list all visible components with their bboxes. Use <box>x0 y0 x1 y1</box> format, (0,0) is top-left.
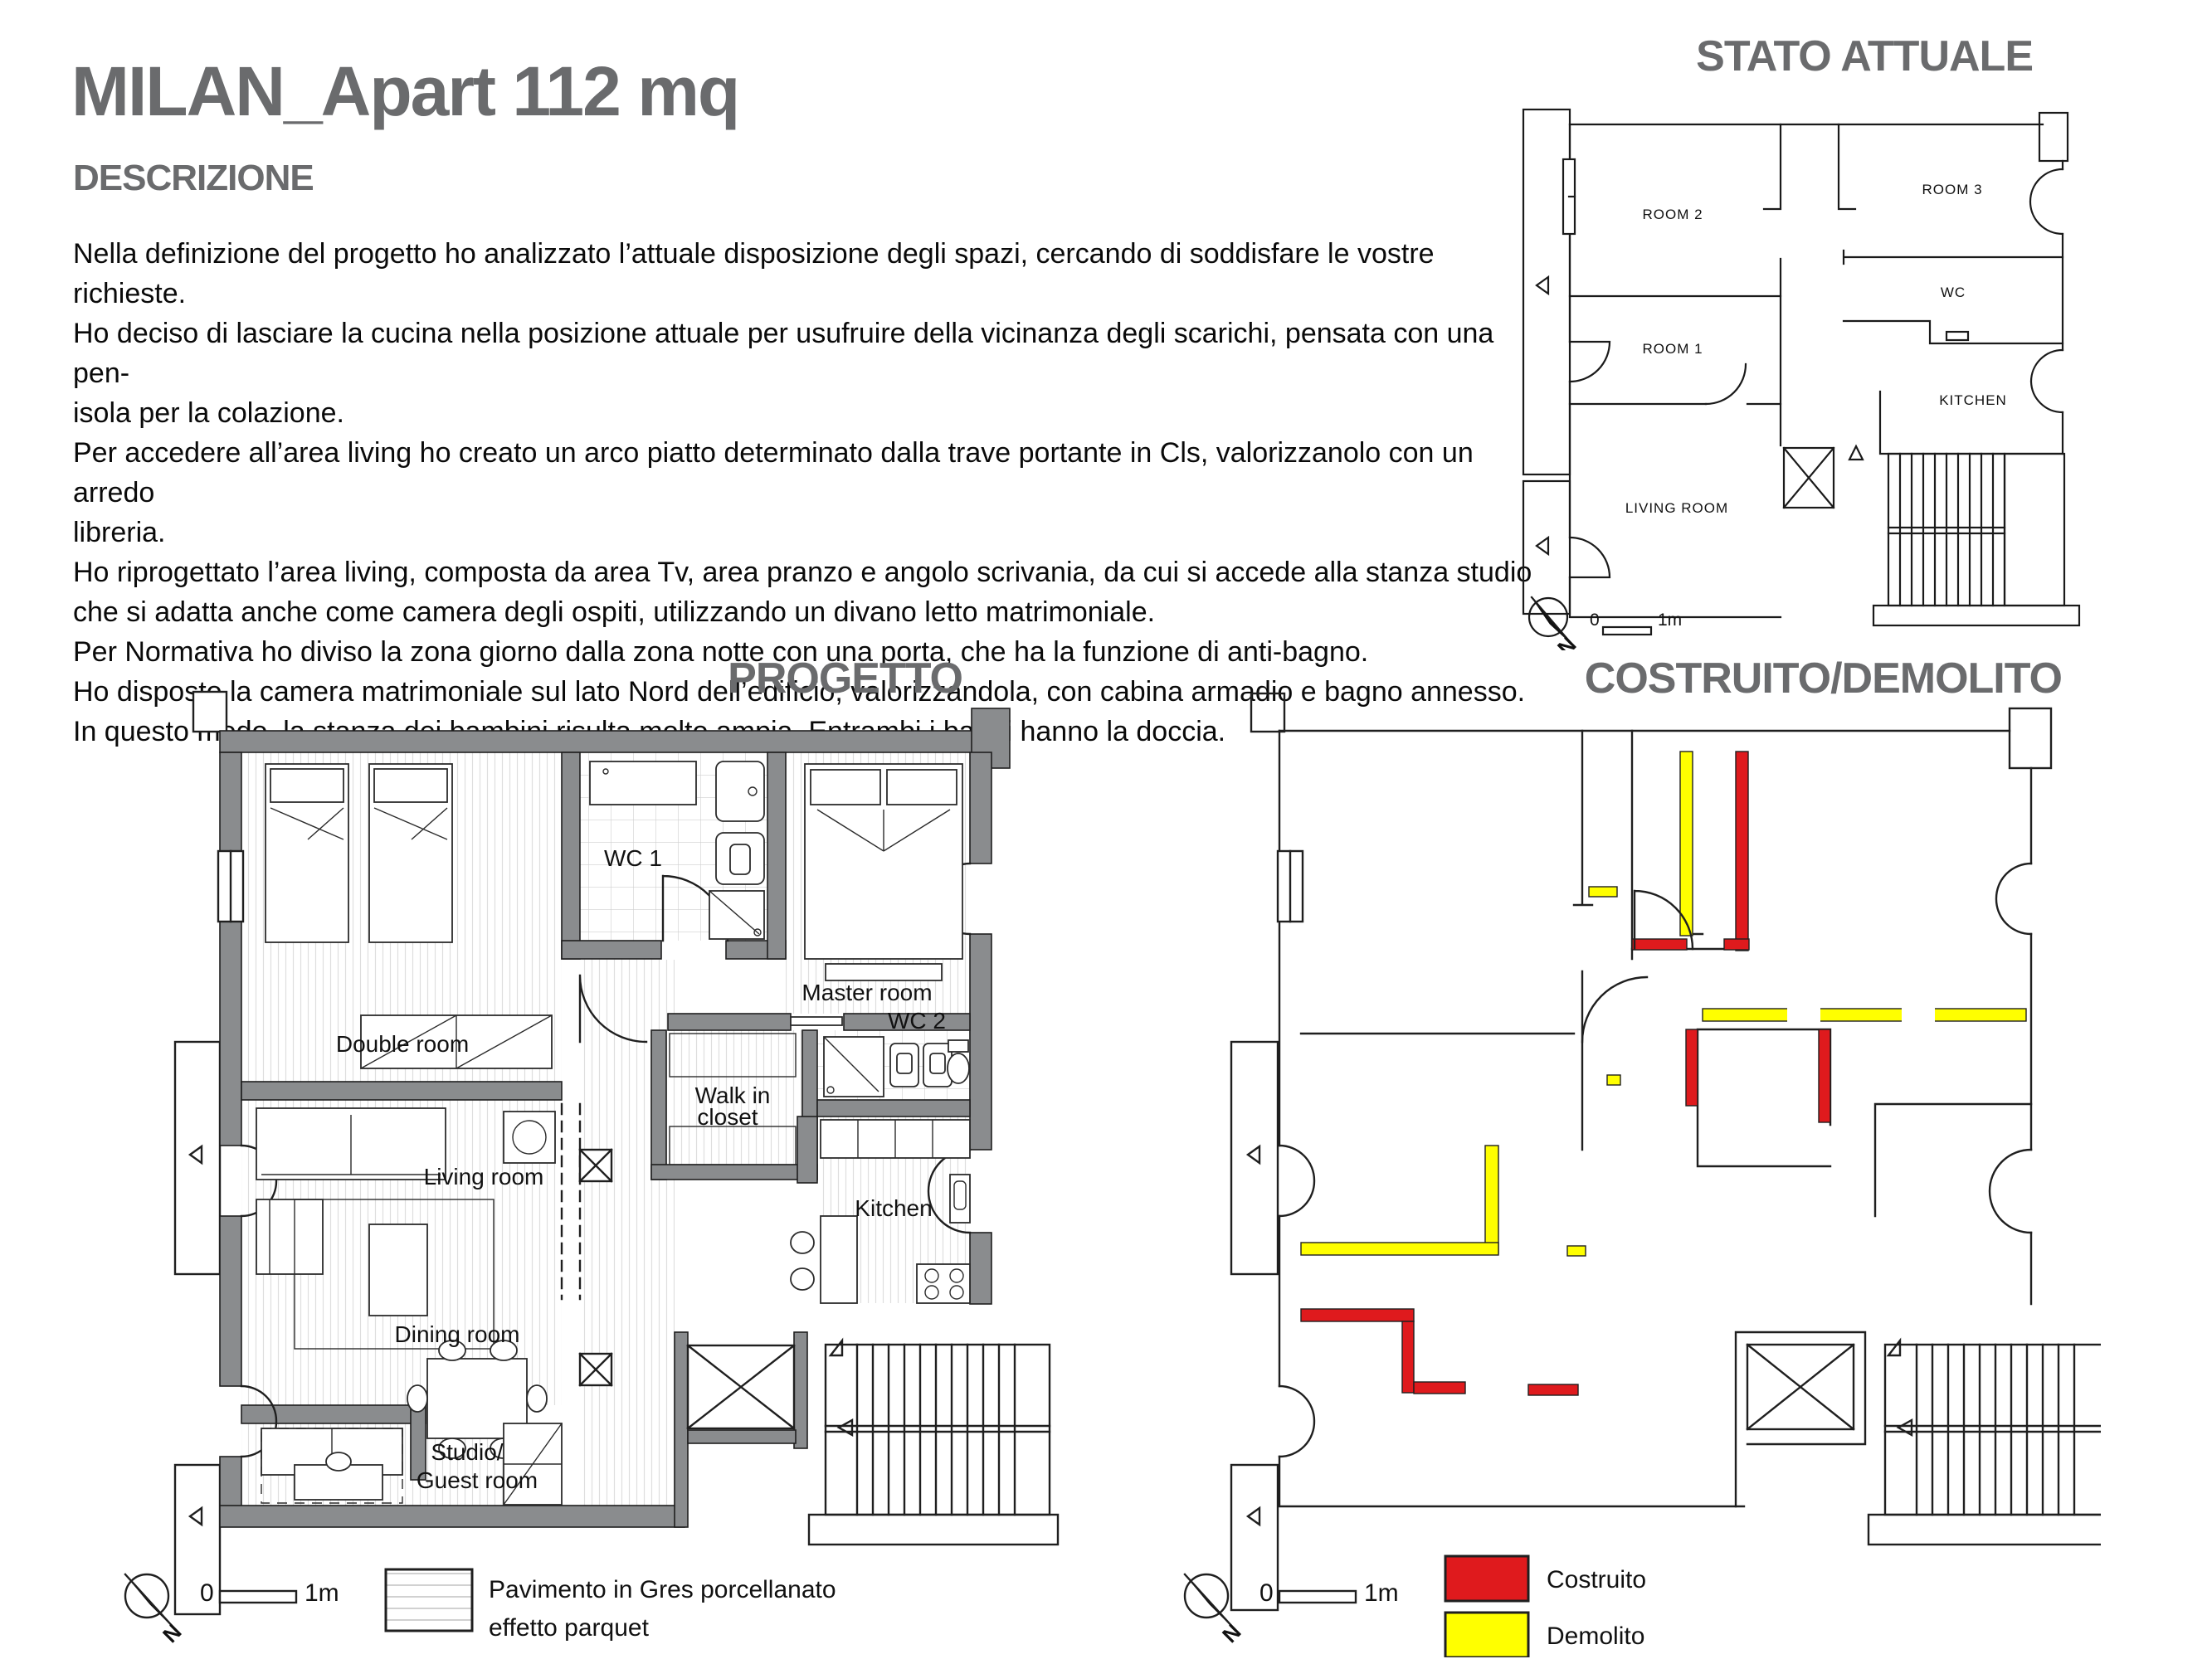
room-label: KITCHEN <box>1939 392 2007 408</box>
room-label: Guest room <box>417 1467 538 1493</box>
room-label: ROOM 3 <box>1922 182 1982 197</box>
room-label: Dining room <box>395 1321 520 1347</box>
room-label: Double room <box>336 1031 469 1057</box>
demolito-label: Demolito <box>1547 1623 1644 1650</box>
room-label: Kitchen <box>855 1195 932 1221</box>
elevator-icon <box>1784 448 1834 508</box>
progetto-plan: Double room WC 1 Master room Walk in clo… <box>95 685 1074 1657</box>
exterior-corridor <box>1523 481 1570 614</box>
room-label: ROOM 1 <box>1642 341 1703 357</box>
entry-arrow-icon <box>1849 446 1863 460</box>
costruito-label: Costruito <box>1547 1566 1646 1593</box>
elevator-icon <box>688 1345 794 1428</box>
door-arrow-icon <box>1248 1508 1259 1525</box>
room-label: WC 1 <box>604 845 662 871</box>
door-arrow-icon <box>1537 277 1548 294</box>
compass-icon: N <box>1529 597 1581 650</box>
room-label: closet <box>697 1104 758 1130</box>
exterior-pilaster <box>193 692 227 732</box>
costruito-swatch <box>1445 1556 1528 1601</box>
costruito-legend-item: Costruito <box>1445 1556 1646 1601</box>
scale-unit-label: 1m <box>305 1579 339 1607</box>
built-walls <box>1301 752 1830 1395</box>
bed <box>805 764 962 980</box>
stove-icon <box>917 1264 970 1303</box>
scale-bar: 0 1m <box>1590 611 1682 635</box>
stairs <box>1873 454 2079 625</box>
page-title: MILAN_Apart 112 mq <box>71 51 738 132</box>
stato-attuale-title: STATO ATTUALE <box>1618 32 2033 81</box>
room-label: Living room <box>424 1164 544 1190</box>
exterior-pilaster <box>1251 693 1284 732</box>
elevator-icon <box>1736 1332 1865 1506</box>
coffee-table <box>369 1224 427 1316</box>
floor-legend: Pavimento in Gres porcellanato effetto p… <box>386 1569 836 1642</box>
costruito-demolito-plan: N 0 1m Costruito Demolito <box>1155 685 2101 1657</box>
floor-legend-swatch <box>386 1569 472 1631</box>
compass-n-label: N <box>1217 1619 1245 1647</box>
exterior-corridor <box>1231 1042 1278 1274</box>
stairs <box>1869 1345 2101 1545</box>
scale-bar: 0 1m <box>1259 1579 1399 1607</box>
demolished-walls <box>1301 752 2026 1256</box>
stato-attuale-plan: ROOM 2 ROOM 1 LIVING ROOM ROOM 3 WC KITC… <box>1515 76 2106 650</box>
stairs <box>809 1345 1058 1545</box>
room-label: WC 2 <box>888 1008 946 1034</box>
floor-legend-label: effetto parquet <box>489 1614 650 1642</box>
entry-arrow-icon <box>831 1340 842 1355</box>
compass-n-label: N <box>158 1619 186 1647</box>
door-arrow-icon <box>1248 1146 1259 1163</box>
scale-unit-label: 1m <box>1364 1579 1399 1607</box>
room-label: Master room <box>801 980 932 1005</box>
entry-arrow-icon <box>1888 1340 1900 1355</box>
flat-arch <box>562 1104 580 1299</box>
scale-zero-label: 0 <box>1590 611 1600 630</box>
floor-legend-label: Pavimento in Gres porcellanato <box>489 1576 836 1603</box>
room-label: Studio/ <box>431 1439 503 1465</box>
room-label: LIVING ROOM <box>1625 500 1728 516</box>
scale-unit-label: 1m <box>1658 611 1682 630</box>
exterior-corridor <box>175 1042 220 1274</box>
room-label: ROOM 2 <box>1642 207 1703 222</box>
door-arrow-icon <box>1537 538 1548 554</box>
demolito-swatch <box>1445 1613 1528 1657</box>
descrizione-heading: DESCRIZIONE <box>73 158 314 199</box>
door-arcs <box>1279 864 2031 1457</box>
scale-zero-label: 0 <box>200 1579 214 1607</box>
presentation-sheet: MILAN_Apart 112 mq DESCRIZIONE Nella def… <box>0 0 2212 1659</box>
demolito-legend-item: Demolito <box>1445 1613 1644 1657</box>
peninsula <box>821 1216 857 1303</box>
room-label: WC <box>1941 285 1966 300</box>
walls <box>1278 708 2051 1506</box>
scale-zero-label: 0 <box>1259 1579 1274 1607</box>
